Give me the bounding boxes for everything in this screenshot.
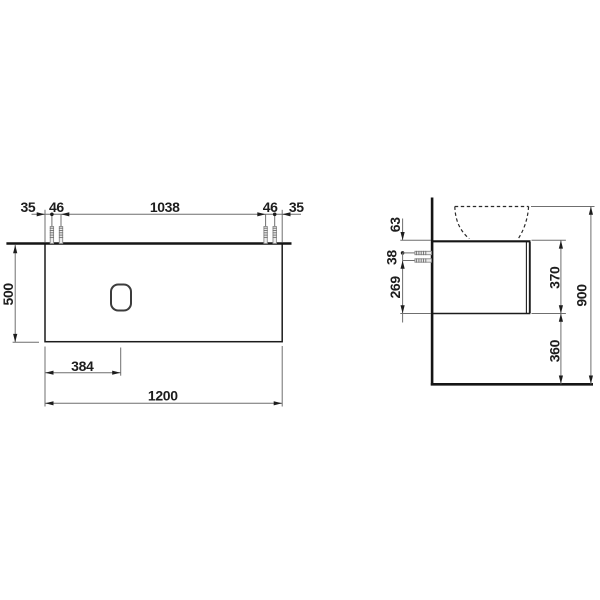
svg-text:1038: 1038 <box>150 199 180 215</box>
svg-text:384: 384 <box>71 358 94 374</box>
svg-text:46: 46 <box>263 199 278 215</box>
svg-text:46: 46 <box>49 199 64 215</box>
svg-text:500: 500 <box>0 283 16 306</box>
svg-text:269: 269 <box>387 276 403 299</box>
svg-text:360: 360 <box>546 339 562 362</box>
svg-text:900: 900 <box>573 284 589 307</box>
svg-text:35: 35 <box>289 199 304 215</box>
svg-text:1200: 1200 <box>148 388 178 404</box>
svg-text:370: 370 <box>547 266 563 289</box>
svg-text:35: 35 <box>20 199 35 215</box>
svg-text:38: 38 <box>383 250 399 265</box>
svg-text:63: 63 <box>387 217 403 232</box>
